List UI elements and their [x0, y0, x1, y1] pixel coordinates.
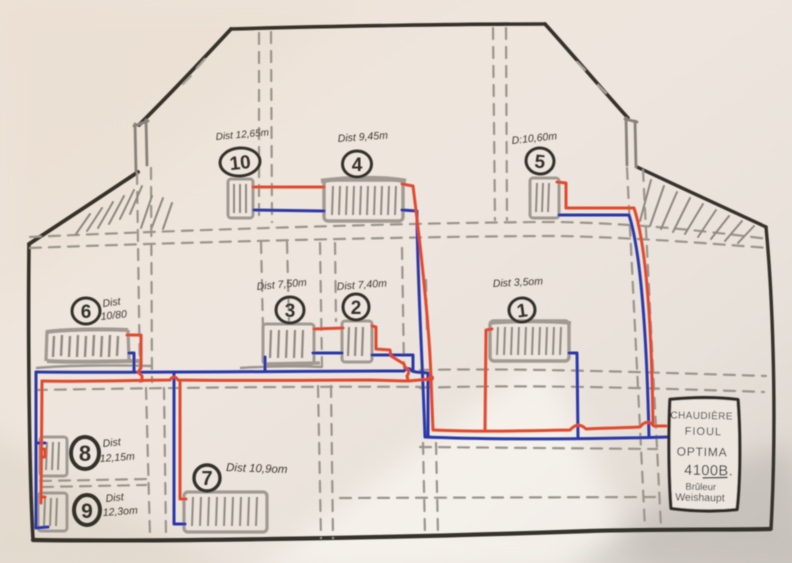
svg-text:Weishaupt: Weishaupt [675, 491, 725, 504]
svg-text:Dist: Dist [102, 436, 122, 450]
svg-text:CHAUDIÈRE: CHAUDIÈRE [670, 408, 733, 422]
svg-text:2: 2 [351, 298, 362, 319]
svg-text:FIOUL: FIOUL [685, 426, 723, 439]
svg-text:8: 8 [79, 441, 91, 466]
svg-text:4: 4 [352, 155, 363, 176]
svg-text:7: 7 [201, 468, 212, 490]
svg-text:3: 3 [285, 301, 296, 322]
svg-text:9: 9 [81, 500, 93, 523]
svg-text:Dist 10,9om: Dist 10,9om [226, 462, 288, 476]
svg-text:10: 10 [229, 152, 252, 175]
svg-text:12,3om: 12,3om [102, 505, 138, 519]
svg-text:12,15m: 12,15m [99, 451, 135, 465]
svg-text:Dist: Dist [105, 491, 125, 505]
svg-text:OPTIMA: OPTIMA [677, 445, 728, 460]
svg-text:6: 6 [81, 302, 92, 323]
